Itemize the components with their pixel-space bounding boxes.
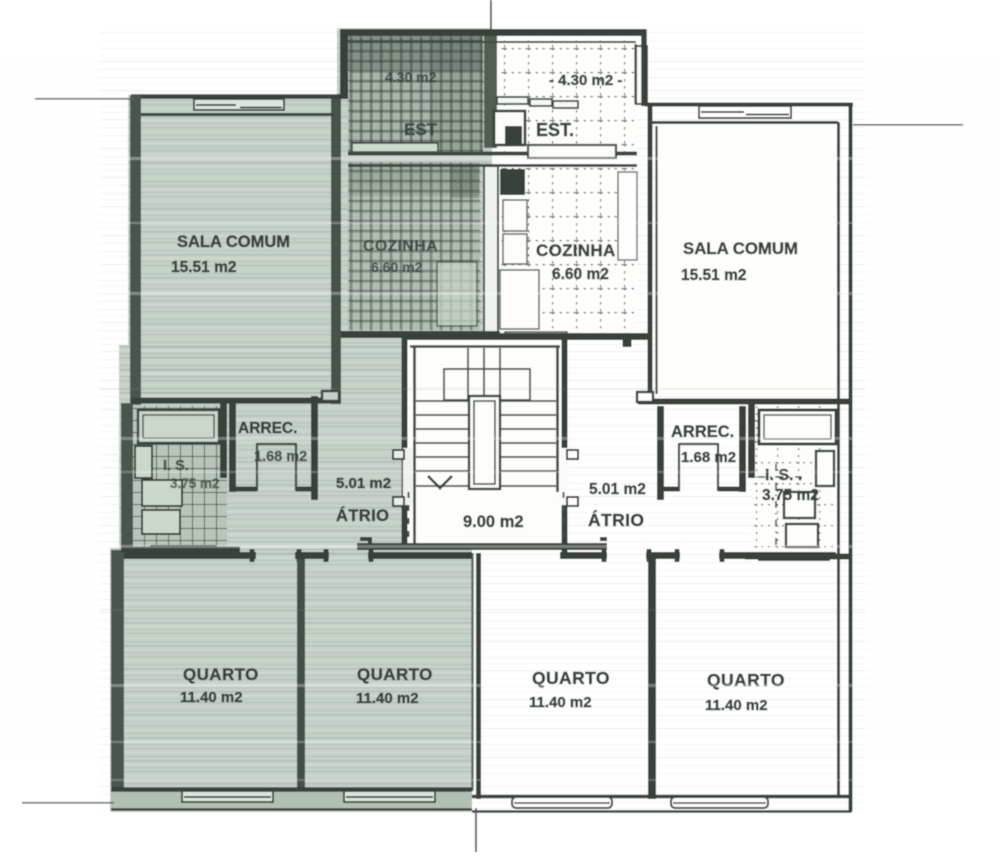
svg-text:11.40 m2: 11.40 m2	[529, 694, 592, 711]
svg-text:I. S. .: I. S. .	[765, 467, 802, 484]
svg-text:4.30 m2: 4.30 m2	[385, 69, 437, 85]
svg-text:15.51 m2: 15.51 m2	[681, 267, 747, 284]
svg-text:9.00 m2: 9.00 m2	[463, 513, 524, 531]
svg-text:1.68 m2: 1.68 m2	[681, 449, 736, 466]
svg-text:QUARTO: QUARTO	[183, 665, 259, 684]
svg-text:6.60 m2: 6.60 m2	[371, 259, 423, 275]
svg-text:ÁTRIO: ÁTRIO	[588, 509, 644, 530]
svg-text:EST.: EST.	[536, 120, 574, 140]
svg-text:EST: EST	[404, 120, 438, 139]
svg-text:11.40 m2: 11.40 m2	[180, 689, 243, 706]
svg-text:3.75 m2: 3.75 m2	[762, 487, 819, 504]
svg-text:ARREC.: ARREC.	[238, 420, 297, 437]
svg-text:SALA COMUM: SALA COMUM	[177, 233, 290, 251]
svg-text:5.01 m2: 5.01 m2	[589, 481, 646, 498]
svg-text:COZINHA: COZINHA	[536, 241, 616, 260]
svg-text:11.40 m2: 11.40 m2	[705, 697, 768, 714]
svg-text:1.68 m2: 1.68 m2	[254, 449, 307, 465]
svg-text:5.01 m2: 5.01 m2	[336, 475, 391, 492]
svg-text:SALA COMUM: SALA COMUM	[683, 239, 798, 258]
svg-text:COZINHA: COZINHA	[363, 238, 438, 255]
svg-text:3.75 m2: 3.75 m2	[170, 476, 220, 491]
svg-text:11.40 m2: 11.40 m2	[356, 690, 419, 707]
svg-text:- 4.30 m2 -: - 4.30 m2 -	[549, 72, 622, 89]
svg-text:QUARTO: QUARTO	[357, 665, 433, 684]
svg-text:ÁTRIO: ÁTRIO	[336, 506, 389, 525]
svg-text:15.51 m2: 15.51 m2	[171, 259, 237, 276]
svg-text:6.60 m2: 6.60 m2	[552, 266, 609, 283]
